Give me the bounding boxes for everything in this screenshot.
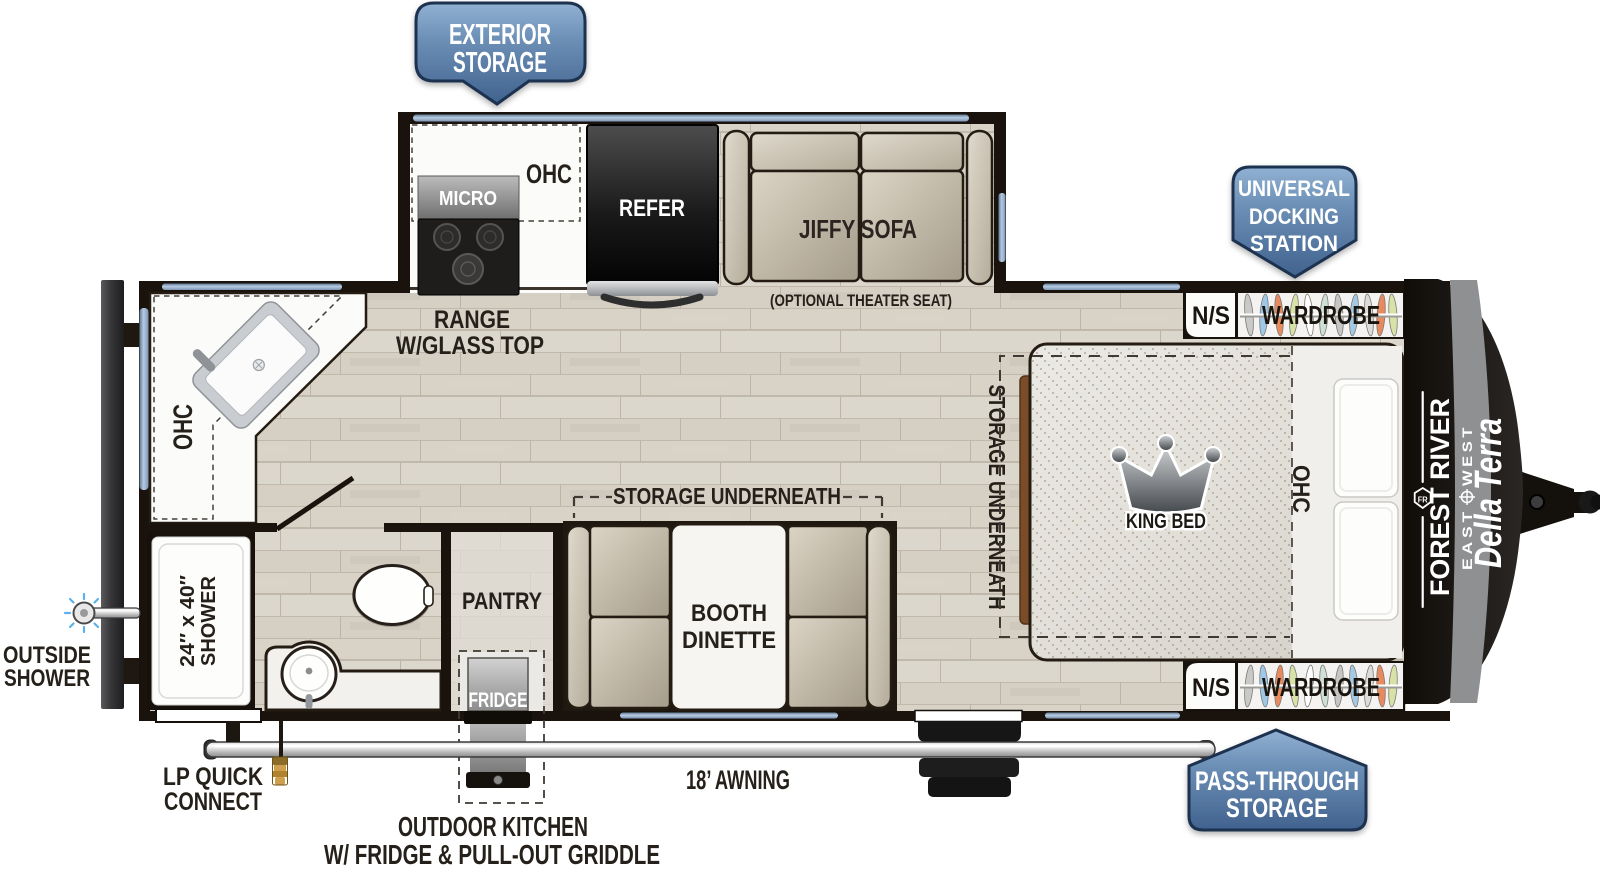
svg-text:UNIVERSAL: UNIVERSAL [1238, 176, 1350, 201]
svg-text:RANGE: RANGE [434, 306, 510, 334]
svg-text:STORAGE UNDERNEATH: STORAGE UNDERNEATH [984, 385, 1010, 610]
svg-text:JIFFY SOFA: JIFFY SOFA [799, 214, 917, 244]
svg-text:FOREST RIVER: FOREST RIVER [1425, 398, 1455, 596]
svg-text:N/S: N/S [1192, 302, 1230, 330]
svg-text:W/GLASS TOP: W/GLASS TOP [396, 332, 544, 360]
svg-text:REFER: REFER [619, 195, 685, 222]
svg-text:PASS-THROUGH: PASS-THROUGH [1195, 766, 1359, 796]
svg-text:OUTDOOR KITCHEN: OUTDOOR KITCHEN [398, 811, 588, 842]
svg-text:MICRO: MICRO [439, 188, 497, 210]
svg-text:Della Terra: Della Terra [1468, 418, 1510, 568]
svg-text:24″ x 40″: 24″ x 40″ [177, 575, 199, 667]
svg-text:OHC: OHC [1287, 465, 1314, 513]
svg-text:STORAGE: STORAGE [453, 47, 547, 79]
svg-text:OHC: OHC [168, 404, 198, 450]
svg-text:WARDROBE: WARDROBE [1262, 300, 1380, 330]
svg-text:DINETTE: DINETTE [682, 627, 776, 654]
svg-text:CONNECT: CONNECT [164, 788, 262, 816]
svg-text:WARDROBE: WARDROBE [1262, 672, 1380, 702]
svg-text:KING BED: KING BED [1126, 510, 1206, 533]
svg-text:FRIDGE: FRIDGE [469, 689, 528, 712]
svg-text:STORAGE UNDERNEATH: STORAGE UNDERNEATH [613, 483, 841, 509]
svg-text:SHOWER: SHOWER [4, 665, 90, 692]
svg-text:18’ AWNING: 18’ AWNING [686, 765, 790, 795]
svg-text:N/S: N/S [1192, 674, 1230, 702]
svg-text:STORAGE: STORAGE [1226, 793, 1328, 823]
svg-text:SHOWER: SHOWER [198, 575, 220, 666]
svg-text:(OPTIONAL THEATER SEAT): (OPTIONAL THEATER SEAT) [770, 291, 952, 310]
svg-text:LP QUICK: LP QUICK [163, 763, 263, 791]
svg-text:STATION: STATION [1250, 231, 1338, 256]
svg-text:W/ FRIDGE & PULL-OUT GRIDDLE: W/ FRIDGE & PULL-OUT GRIDDLE [324, 839, 660, 869]
svg-text:BOOTH: BOOTH [691, 600, 767, 627]
svg-text:DOCKING: DOCKING [1249, 204, 1339, 229]
svg-text:OHC: OHC [526, 159, 572, 189]
svg-text:PANTRY: PANTRY [462, 588, 542, 615]
